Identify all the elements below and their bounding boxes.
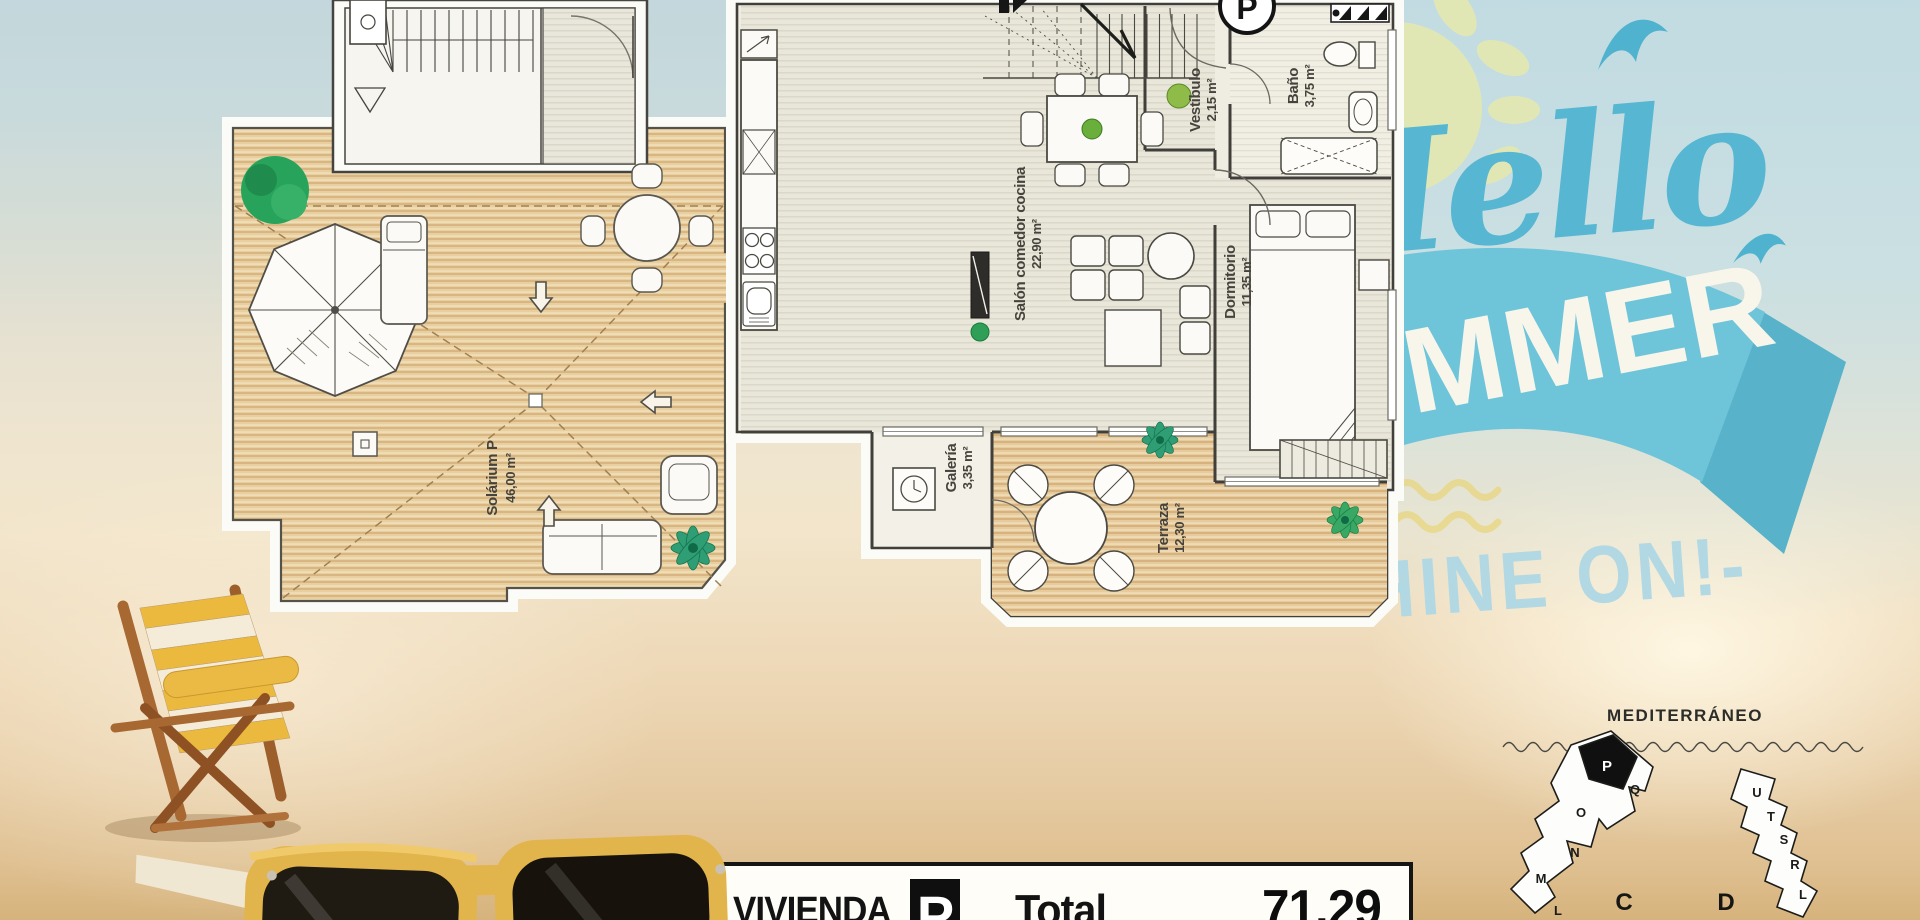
map-unit-q: Q xyxy=(1630,782,1640,797)
room-label-bano: Baño 3,75 m² xyxy=(1285,64,1317,108)
utility-box xyxy=(350,0,386,44)
svg-text:Dormitorio: Dormitorio xyxy=(1222,245,1239,319)
sink-icon xyxy=(743,282,775,326)
map-unit-s: S xyxy=(1780,832,1789,847)
table-plant-icon xyxy=(1082,119,1102,139)
map-unit-m: M xyxy=(1536,871,1547,886)
plant-icon xyxy=(971,323,989,341)
svg-text:11,35 m²: 11,35 m² xyxy=(1239,257,1254,307)
wardrobe xyxy=(1280,440,1387,478)
unit-letter-box: P xyxy=(910,879,960,920)
washing-machine-icon xyxy=(893,468,935,510)
svg-text:Vestíbulo: Vestíbulo xyxy=(1187,68,1204,132)
stove-icon xyxy=(743,228,775,274)
svg-text:Terraza: Terraza xyxy=(1155,502,1172,553)
vivienda-label: VIVIENDA xyxy=(733,890,891,920)
palm-plant-icon xyxy=(671,526,715,570)
block-d-label: D xyxy=(1717,889,1734,916)
map-unit-l2: L xyxy=(1799,887,1807,902)
toilet-icon xyxy=(1324,42,1356,66)
site-map: MEDITERRÁNEO P Q O N M L C U T S R L D xyxy=(1495,695,1875,920)
room-label-galeria: Galería 3,35 m² xyxy=(943,443,975,493)
map-unit-r: R xyxy=(1790,857,1800,872)
apartment-floor-plan: P Salón comedor cocina 22,90 m² Vestíbul… xyxy=(733,0,1401,645)
temple-arm xyxy=(135,855,251,909)
stair-room xyxy=(333,0,647,172)
terrace-plant-icon xyxy=(1327,502,1363,538)
shoreline-wave xyxy=(1503,743,1863,752)
wave-squiggle-icon xyxy=(1386,470,1516,560)
kitchen-counter xyxy=(741,30,777,330)
svg-text:P: P xyxy=(1236,0,1257,26)
bush-icon xyxy=(241,156,309,224)
sunglasses-photo xyxy=(130,822,670,920)
solarium-floor-plan: Solárium P 46,00 m² xyxy=(205,0,750,640)
room-label-terraza: Terraza 12,30 m² xyxy=(1155,502,1187,553)
nightstand xyxy=(1359,260,1389,290)
floor-drain-box xyxy=(353,432,377,456)
total-area-value: 71.29 m² xyxy=(1262,879,1402,920)
building-block-c xyxy=(1511,731,1653,913)
deck-chair-photo xyxy=(85,578,320,846)
total-area-bar: VIVIENDA P Total Superficie 71.29 m² xyxy=(655,862,1413,920)
map-unit-n: N xyxy=(1570,845,1579,860)
svg-text:46,00 m²: 46,00 m² xyxy=(503,452,518,503)
svg-text:3,35 m²: 3,35 m² xyxy=(960,446,975,490)
armchair xyxy=(661,456,717,514)
svg-text:Salón comedor cocina: Salón comedor cocina xyxy=(1012,166,1029,321)
terrace-plant-icon xyxy=(1142,422,1178,458)
map-unit-o: O xyxy=(1576,805,1586,820)
site-map-title: MEDITERRÁNEO xyxy=(1607,706,1763,725)
block-c-label: C xyxy=(1615,889,1632,916)
map-unit-p: P xyxy=(1602,758,1612,775)
svg-text:Galería: Galería xyxy=(943,443,960,493)
tv-unit xyxy=(971,252,989,341)
svg-text:2,15 m²: 2,15 m² xyxy=(1204,78,1219,122)
map-unit-u: U xyxy=(1752,785,1761,800)
panel-symbol xyxy=(1331,4,1389,22)
svg-text:12,30 m²: 12,30 m² xyxy=(1172,502,1187,553)
map-unit-t: T xyxy=(1767,809,1775,824)
total-superficie-label: Total Superficie xyxy=(1015,886,1230,920)
map-unit-l: L xyxy=(1554,903,1562,918)
svg-text:Baño: Baño xyxy=(1285,68,1302,104)
poster: Hello SUMMER SHINE ON!- xyxy=(0,0,1920,920)
sun-lounger xyxy=(381,216,427,324)
svg-text:Solárium P: Solárium P xyxy=(484,440,501,516)
outdoor-sofa xyxy=(543,520,661,574)
svg-text:22,90 m²: 22,90 m² xyxy=(1029,218,1044,269)
svg-text:3,75 m²: 3,75 m² xyxy=(1302,64,1317,108)
